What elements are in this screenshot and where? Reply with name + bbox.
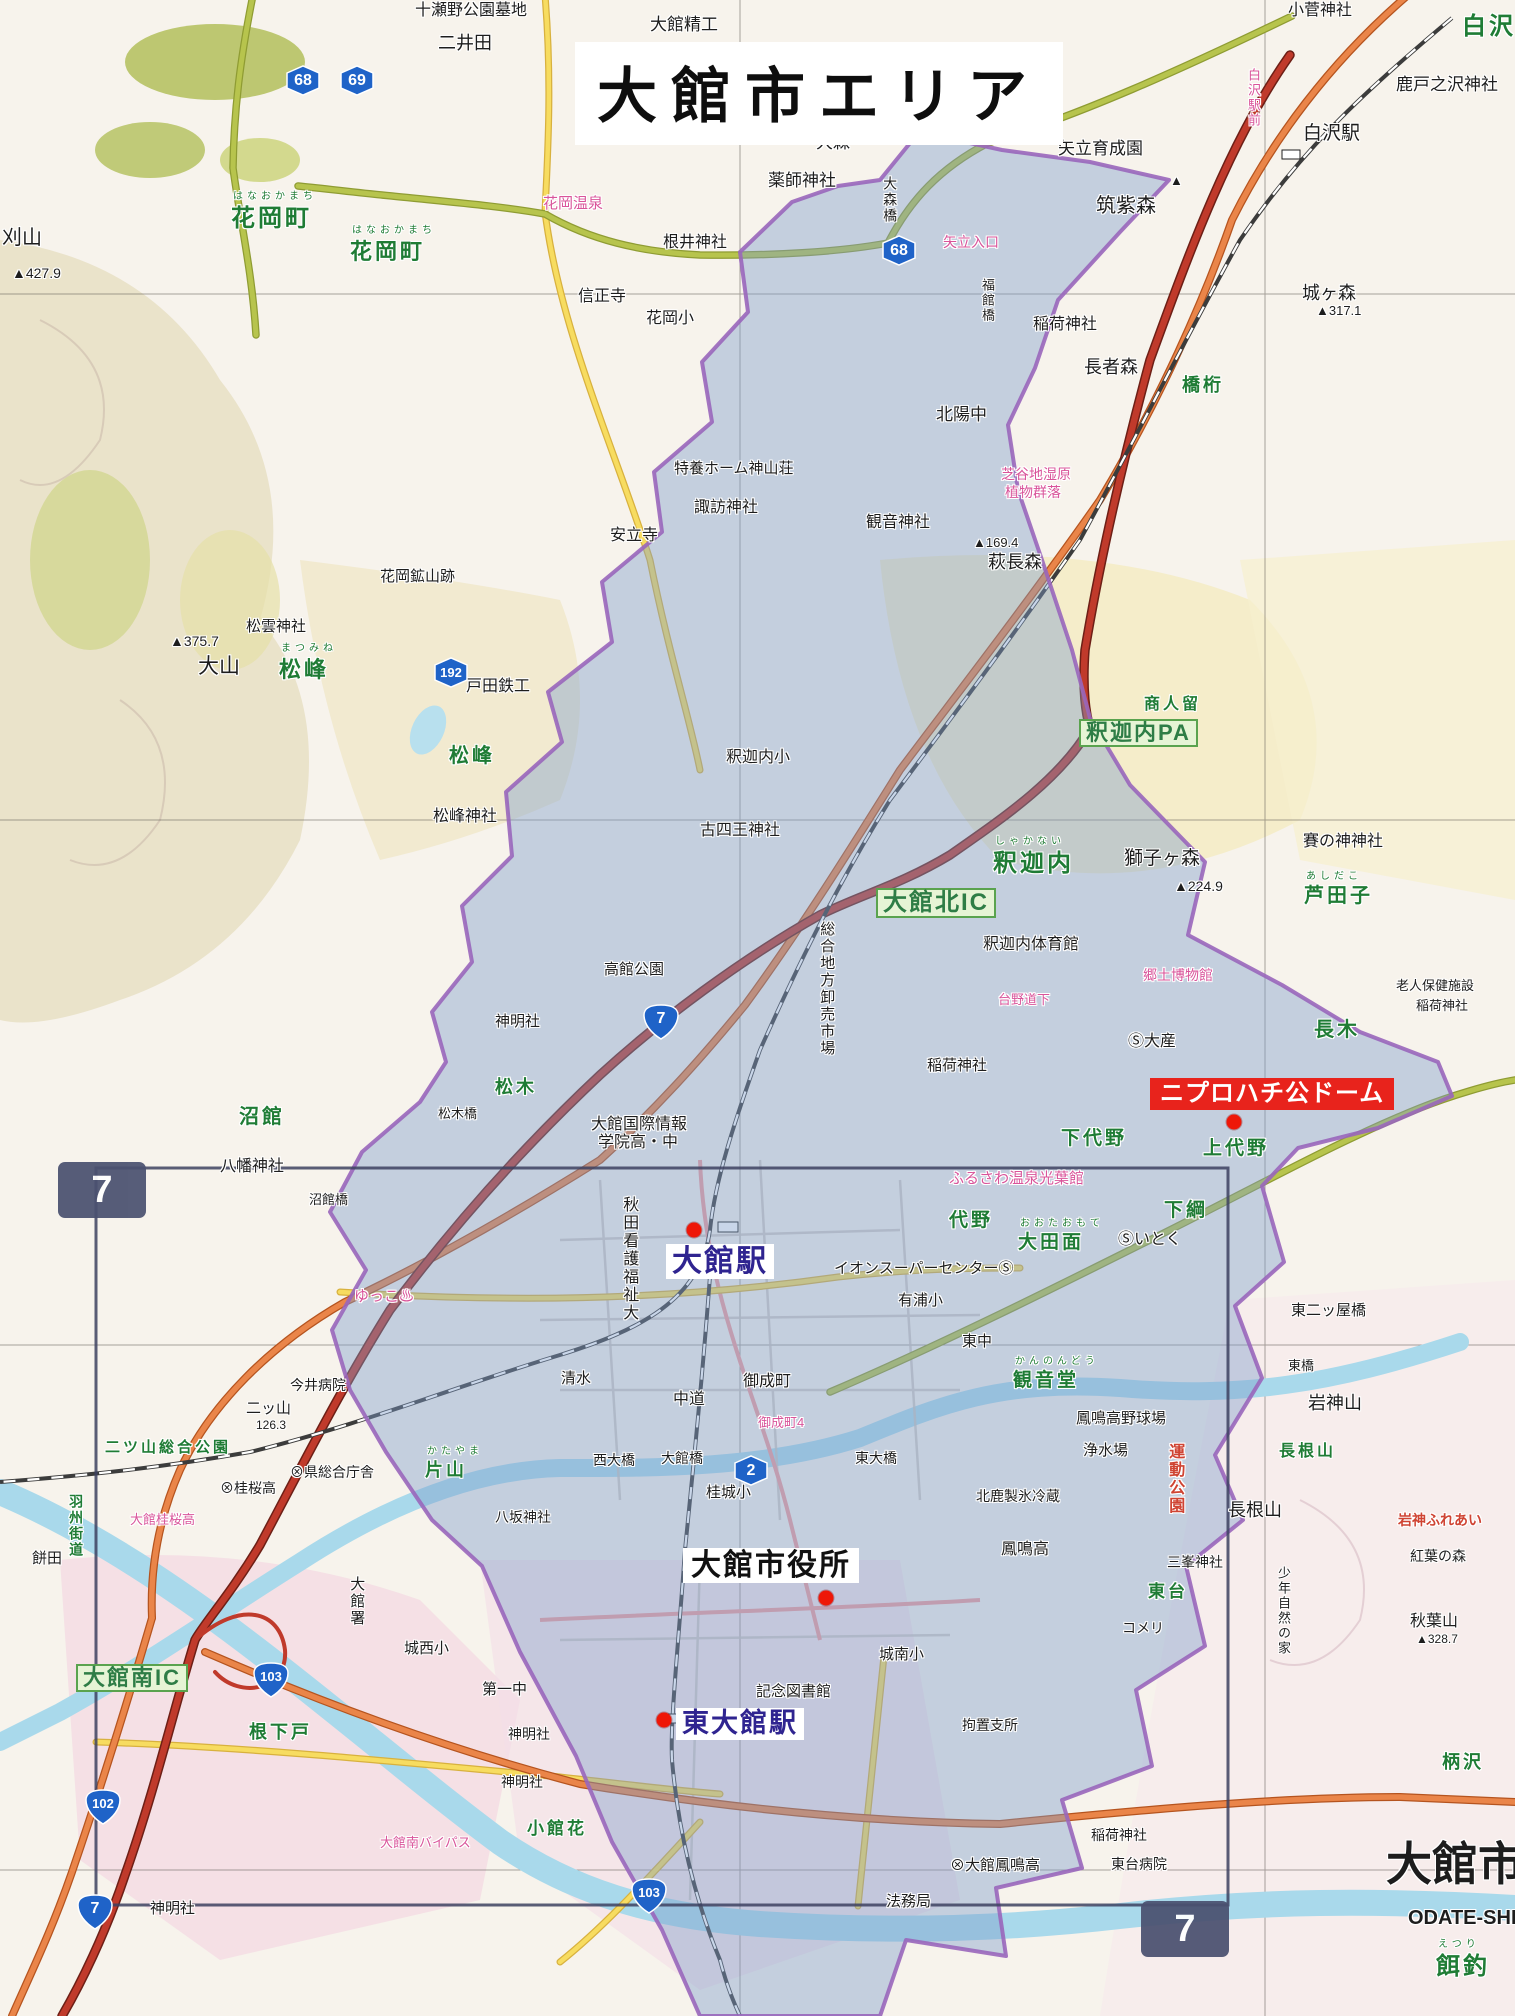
odate-map: 十瀬野公園墓地大館精工二井田小菅神社白沢鹿戸之沢神社白沢駅白沢駅前矢立育成園大森… bbox=[0, 0, 1515, 2016]
poi-dot bbox=[687, 1223, 702, 1238]
poi-dot bbox=[1227, 1115, 1242, 1130]
map-title: 大館市エリア bbox=[575, 42, 1063, 145]
poi-dot bbox=[819, 1591, 834, 1606]
poi-dot bbox=[657, 1713, 672, 1728]
dots-layer bbox=[0, 0, 1515, 2016]
